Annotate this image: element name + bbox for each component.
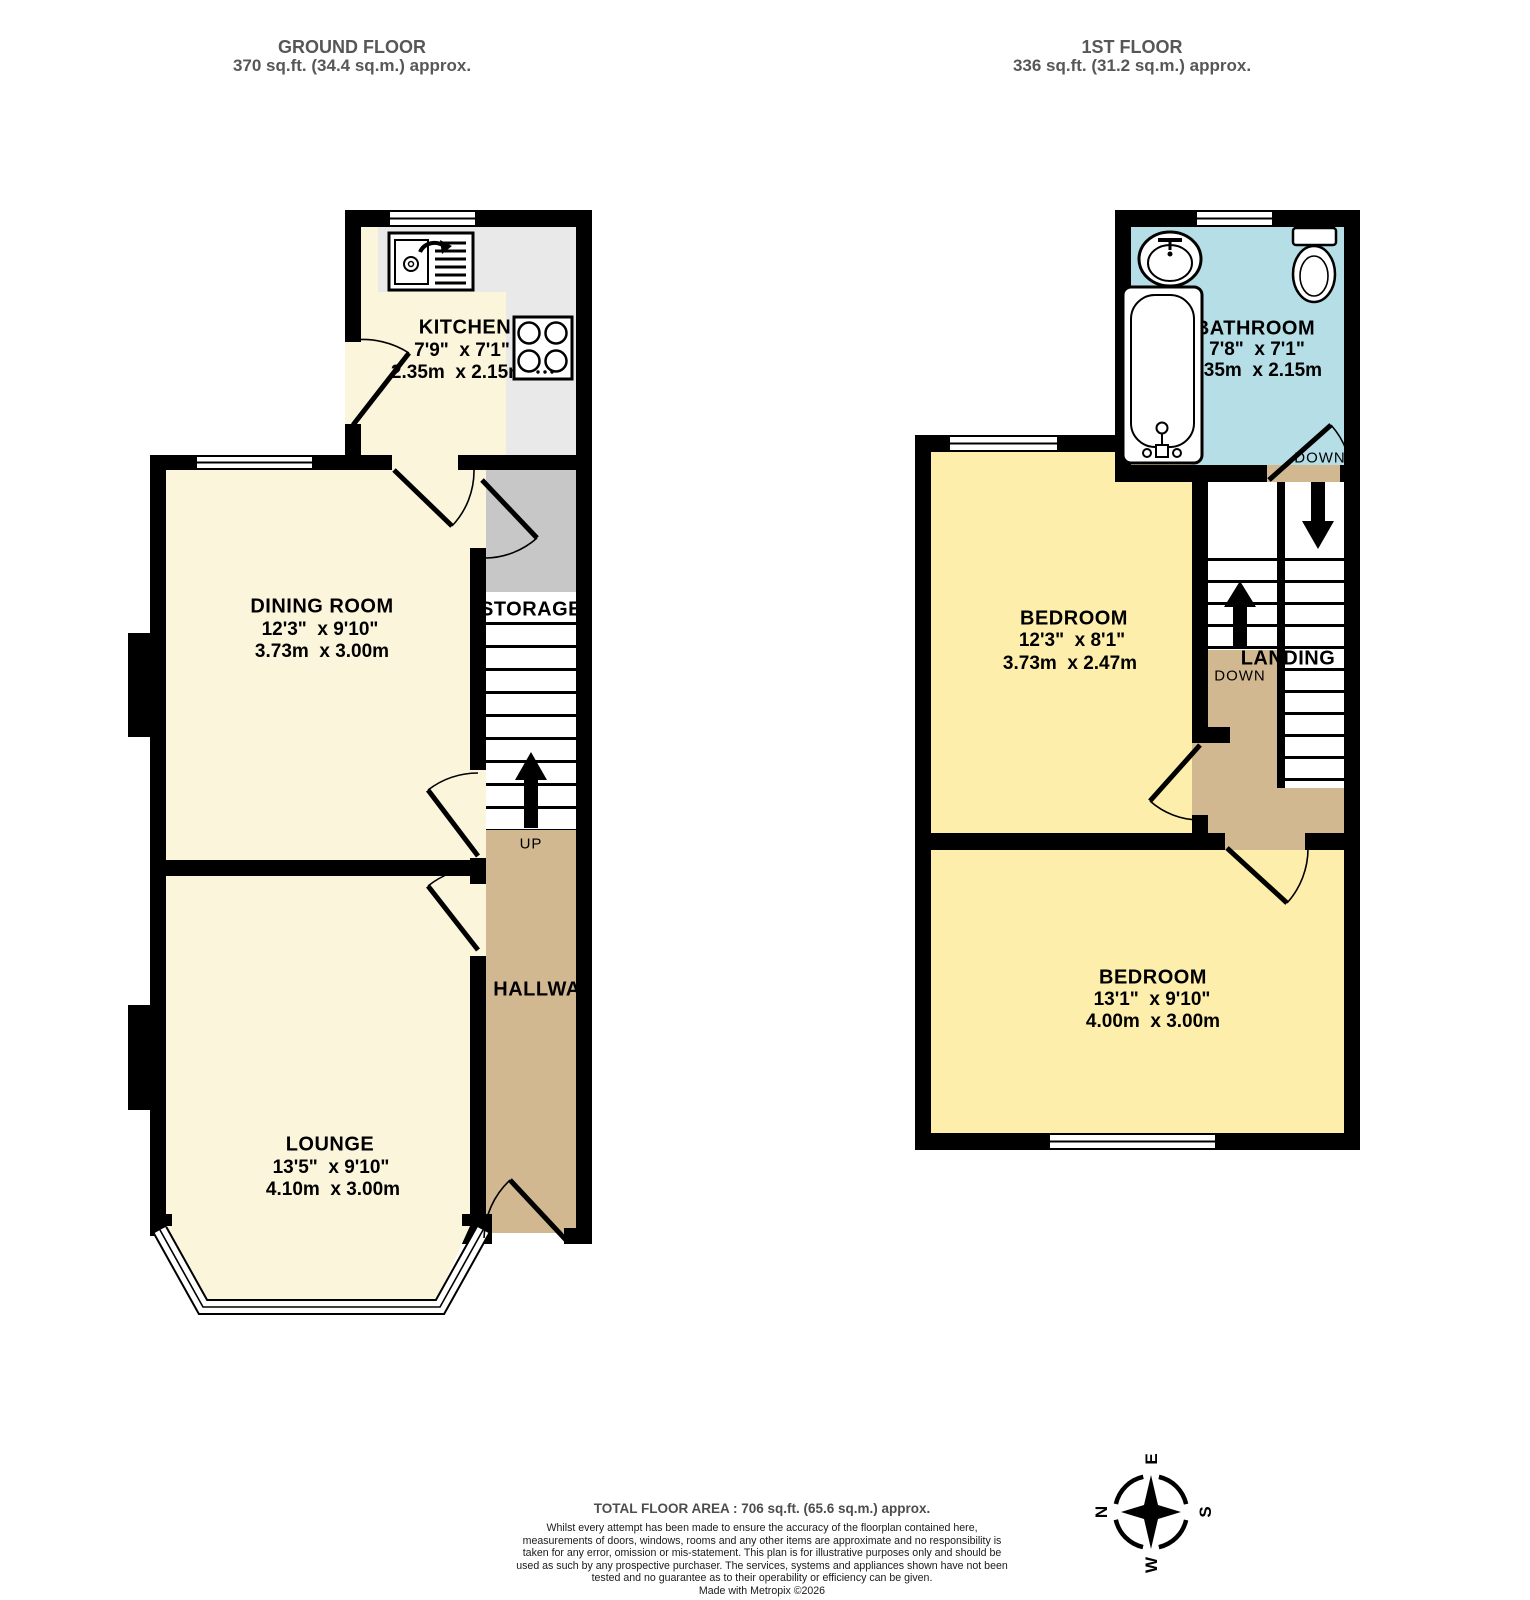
first-floor-header: 1ST FLOOR 336 sq.ft. (31.2 sq.m.) approx… — [1013, 38, 1251, 75]
dining-room-label: DINING ROOM — [250, 596, 393, 619]
wall — [345, 227, 361, 342]
kitchen-dims-imperial: 7'9" x 7'1" — [414, 340, 510, 362]
wall — [915, 833, 1225, 850]
floorplan-page: GROUND FLOOR 370 sq.ft. (34.4 sq.m.) app… — [0, 0, 1530, 1600]
disclaimer-text: Whilst every attempt has been made to en… — [512, 1522, 1012, 1585]
storage-label: STORAGE — [480, 599, 582, 622]
landing-down-label: DOWN — [1214, 668, 1266, 685]
footer: TOTAL FLOOR AREA : 706 sq.ft. (65.6 sq.m… — [512, 1501, 1012, 1597]
lounge-dims-imperial: 13'5" x 9'10" — [273, 1157, 390, 1179]
bedroom-back-window — [1050, 1133, 1215, 1150]
wall — [1192, 482, 1208, 743]
wall — [564, 1228, 592, 1244]
door-opening — [1192, 743, 1208, 815]
wall — [470, 548, 486, 770]
wall — [1115, 465, 1267, 482]
bedroom-front-window — [950, 435, 1057, 452]
bathroom-dims-metric: 2.35m x 2.15m — [1188, 360, 1322, 382]
bedroom-back-dims-imperial: 13'1" x 9'10" — [1094, 989, 1211, 1011]
wall — [345, 424, 361, 455]
door-opening — [1267, 465, 1340, 482]
bedroom-front-dims-imperial: 12'3" x 8'1" — [1019, 630, 1125, 652]
ground-floor-area: 370 sq.ft. (34.4 sq.m.) approx. — [233, 57, 471, 75]
stairs-treads — [1285, 558, 1344, 785]
dining-room-dims-metric: 3.73m x 3.00m — [255, 641, 389, 663]
wall — [1192, 727, 1230, 743]
bathroom-window — [1197, 210, 1272, 227]
landing-floor — [1277, 788, 1344, 833]
wall — [915, 435, 931, 1150]
door-opening — [1225, 833, 1305, 850]
kitchen-floor — [361, 227, 378, 292]
wall — [1340, 465, 1360, 482]
dining-room-window — [197, 455, 312, 470]
wall — [462, 1214, 492, 1244]
dining-room-dims-imperial: 12'3" x 9'10" — [262, 619, 379, 641]
hallway-floor — [486, 830, 576, 1233]
bedroom-back-label: BEDROOM — [1099, 967, 1207, 990]
wall — [1192, 815, 1208, 833]
wall — [576, 210, 592, 1244]
stairs-treads — [486, 622, 576, 830]
wall — [1305, 833, 1360, 850]
total-floor-area: TOTAL FLOOR AREA : 706 sq.ft. (65.6 sq.m… — [512, 1501, 1012, 1516]
stairs-treads — [1208, 558, 1277, 650]
door-opening — [470, 770, 486, 858]
door-opening — [345, 342, 361, 424]
kitchen-label: KITCHEN — [419, 317, 511, 340]
kitchen-window — [390, 210, 475, 227]
dining-room-floor — [166, 470, 470, 860]
first-floor-area: 336 sq.ft. (31.2 sq.m.) approx. — [1013, 57, 1251, 75]
bathroom-dims-imperial: 7'8" x 7'1" — [1209, 339, 1305, 361]
bathroom-down-label: DOWN — [1294, 450, 1346, 467]
credit-text: Made with Metropix ©2026 — [512, 1585, 1012, 1597]
door-opening — [470, 470, 486, 548]
wall — [1344, 210, 1360, 1150]
chimney-breast — [128, 1005, 150, 1110]
bedroom-back-dims-metric: 4.00m x 3.00m — [1086, 1011, 1220, 1033]
wall — [150, 470, 166, 1232]
door-opening — [392, 455, 458, 470]
lounge-label: LOUNGE — [286, 1134, 375, 1157]
bathroom-label: BATHROOM — [1195, 318, 1315, 341]
wall — [470, 956, 486, 1232]
stairs-up-label: UP — [520, 836, 543, 853]
bedroom-front-label: BEDROOM — [1020, 608, 1128, 631]
storage-floor — [486, 470, 576, 592]
ground-floor-title: GROUND FLOOR — [233, 38, 471, 57]
kitchen-dims-metric: 2.35m x 2.15m — [391, 362, 525, 384]
lounge-dims-metric: 4.10m x 3.00m — [266, 1179, 400, 1201]
wall — [150, 1214, 172, 1236]
stairs-divider-wall — [1277, 482, 1285, 788]
ground-floor-header: GROUND FLOOR 370 sq.ft. (34.4 sq.m.) app… — [233, 38, 471, 75]
bedroom-front-dims-metric: 3.73m x 2.47m — [1003, 653, 1137, 675]
chimney-breast — [128, 633, 150, 737]
first-floor-title: 1ST FLOOR — [1013, 38, 1251, 57]
door-opening — [470, 884, 486, 956]
wall — [150, 860, 486, 876]
